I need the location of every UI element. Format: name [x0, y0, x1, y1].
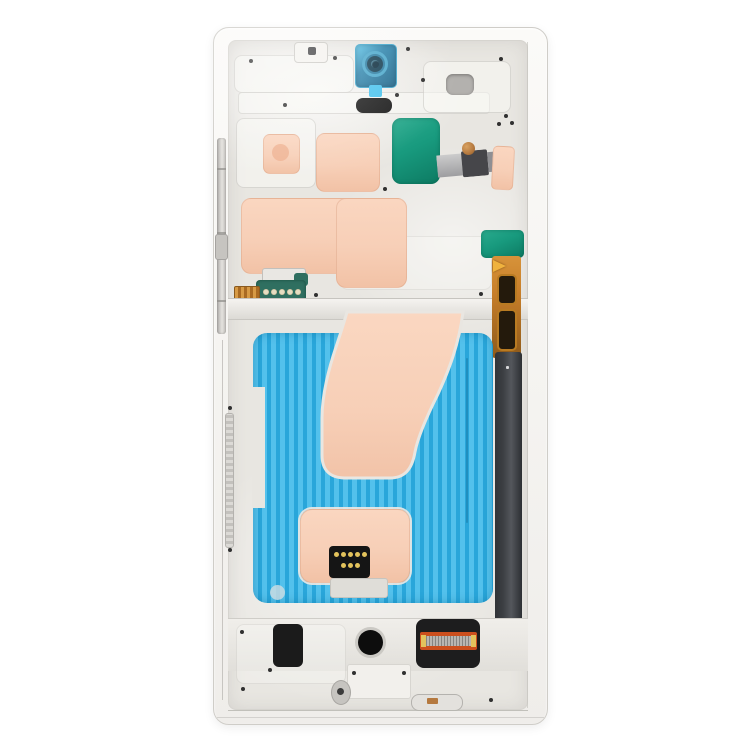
screw-mark [314, 293, 318, 297]
flex-window [497, 309, 517, 351]
frame-seam [222, 340, 223, 700]
arrow-sticker-icon [493, 260, 506, 272]
screw-mark [504, 114, 508, 118]
gold-contact-dot [341, 552, 346, 557]
gold-contact-dot [348, 563, 353, 568]
adhesive-pad-circle [272, 144, 289, 161]
screw-mark [249, 59, 253, 63]
teal-flex-pad-top [392, 118, 440, 184]
rail-joint [217, 168, 226, 170]
connector-gold-end [471, 635, 476, 647]
contact-dot [295, 289, 301, 295]
screw-mark [268, 668, 272, 672]
gold-contact-dot [355, 552, 360, 557]
screw-mark [421, 78, 425, 82]
adhesive-circle-cut [270, 585, 285, 600]
flex-window [497, 274, 517, 305]
rail-contact-bump [215, 234, 228, 260]
photo-canvas: { "scene": { "type": "product-photo", "d… [0, 0, 750, 750]
adhesive-scratch [466, 358, 468, 523]
screw-mark [228, 548, 232, 552]
contact-dot [271, 289, 277, 295]
frame-seam [228, 710, 528, 711]
frame-seam [527, 42, 528, 708]
frame-seam [217, 717, 544, 718]
grommet-hole [337, 688, 344, 695]
screw-mark [283, 103, 287, 107]
adhesive-pad-right [491, 145, 515, 190]
screw-mark [497, 122, 501, 126]
screw-mark [479, 292, 483, 296]
screw-mark [352, 671, 356, 675]
gold-contact-dot [355, 563, 360, 568]
copper-chip [427, 698, 438, 704]
bottom-recess [347, 664, 411, 699]
screw-mark [333, 56, 337, 60]
adhesive-sheet-upper-step [336, 198, 407, 288]
camera-lens-dot [371, 60, 379, 68]
screw-mark [241, 687, 245, 691]
gold-contact-dot [362, 552, 367, 557]
adhesive-pad-mid [316, 133, 380, 192]
contact-dot [263, 289, 269, 295]
earpiece-recess [446, 74, 474, 95]
sensor-opening [356, 98, 392, 113]
frame-strap [330, 578, 388, 598]
gold-contact-dot [341, 563, 346, 568]
contact-dot [287, 289, 293, 295]
adhesive-notch [252, 387, 265, 508]
teal-flex-pad-right [481, 230, 524, 258]
gold-contact-dot [348, 552, 353, 557]
coil-connector [329, 546, 370, 578]
machined-strip [225, 413, 234, 548]
frame-crossbar [228, 298, 528, 320]
connector-pins [426, 636, 471, 646]
screw-mark [228, 406, 232, 410]
strip-marking [506, 366, 509, 369]
ribbon-segment [436, 153, 463, 177]
screw-mark [395, 93, 399, 97]
rail-joint [217, 300, 226, 302]
connector-gold-end [421, 635, 426, 647]
copper-contact-dot [462, 142, 475, 155]
screw-mark [510, 121, 514, 125]
sensor-chip [308, 47, 316, 55]
screw-mark [499, 57, 503, 61]
speaker-cavity-cover [273, 624, 303, 667]
screw-mark [406, 47, 410, 51]
screw-mark [489, 698, 493, 702]
film-pull-tab [369, 85, 382, 97]
screw-mark [402, 671, 406, 675]
gold-contact-dot [334, 552, 339, 557]
contact-dot [279, 289, 285, 295]
screw-mark [383, 187, 387, 191]
screw-boss-hole [358, 630, 383, 655]
screw-mark [240, 630, 244, 634]
